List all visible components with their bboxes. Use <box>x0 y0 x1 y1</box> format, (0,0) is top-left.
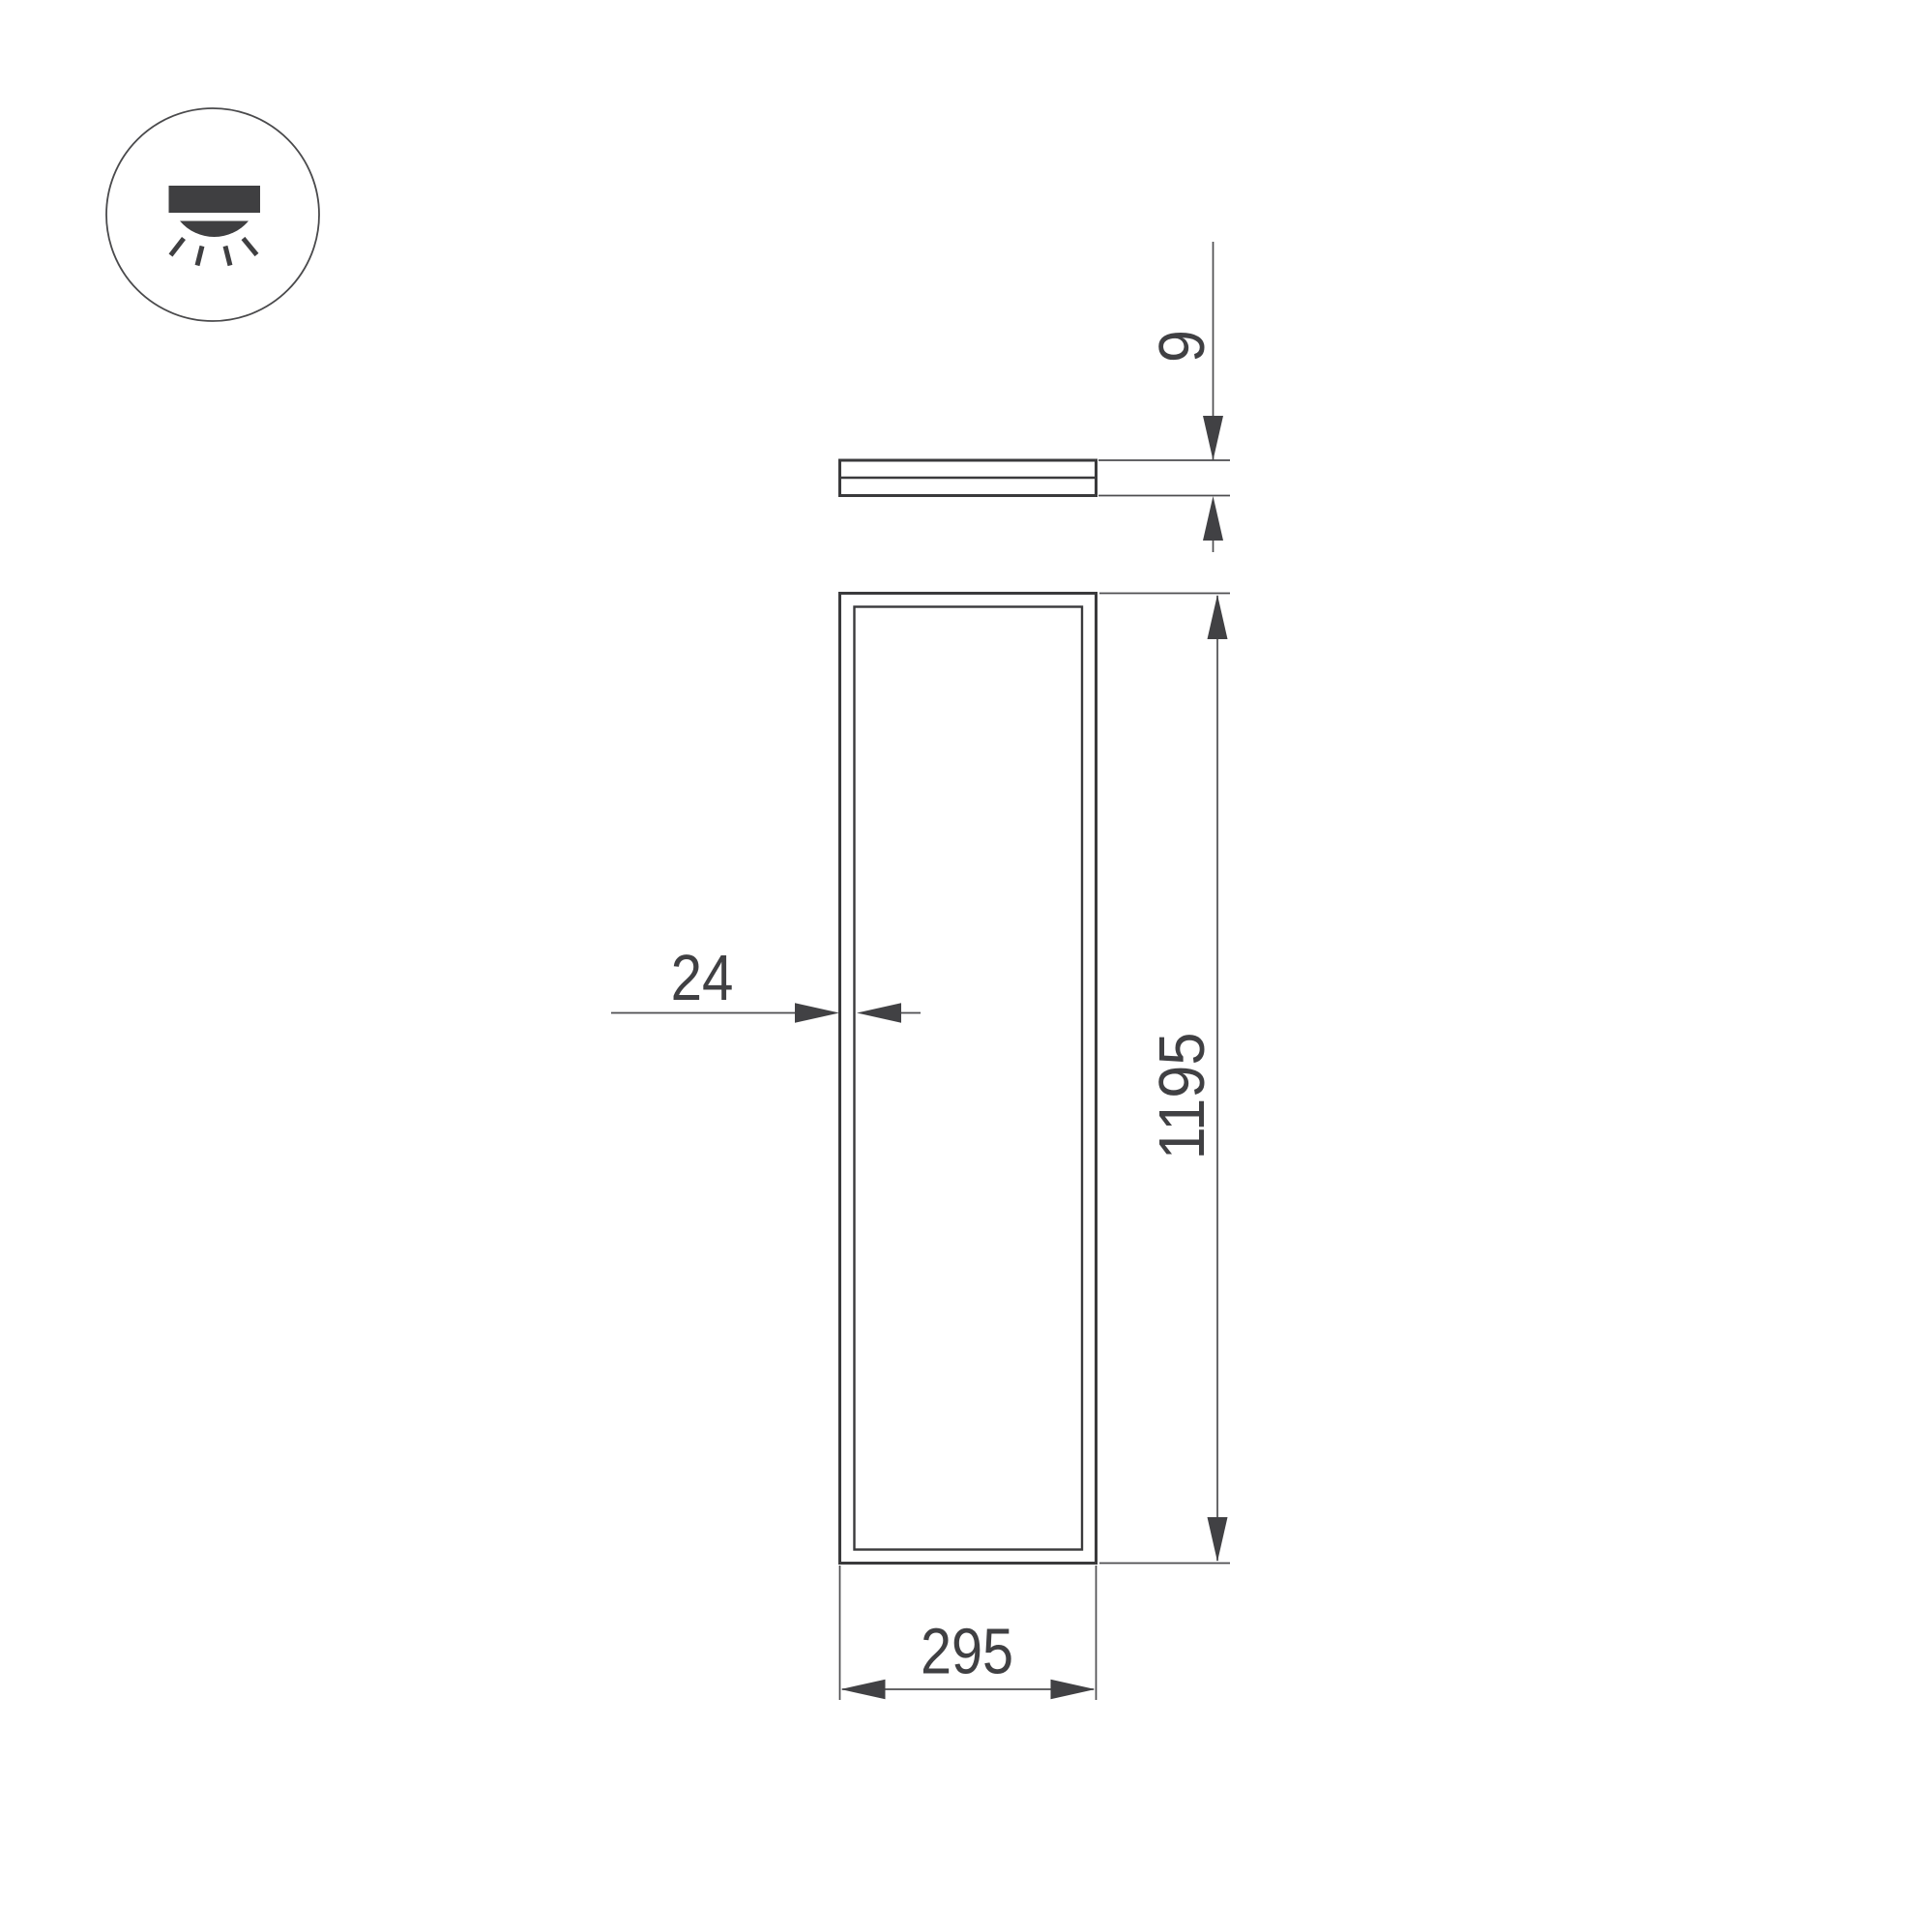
svg-text:9: 9 <box>1145 330 1217 363</box>
svg-text:295: 295 <box>921 1615 1013 1687</box>
svg-text:24: 24 <box>671 942 734 1014</box>
svg-text:1195: 1195 <box>1145 1033 1217 1160</box>
